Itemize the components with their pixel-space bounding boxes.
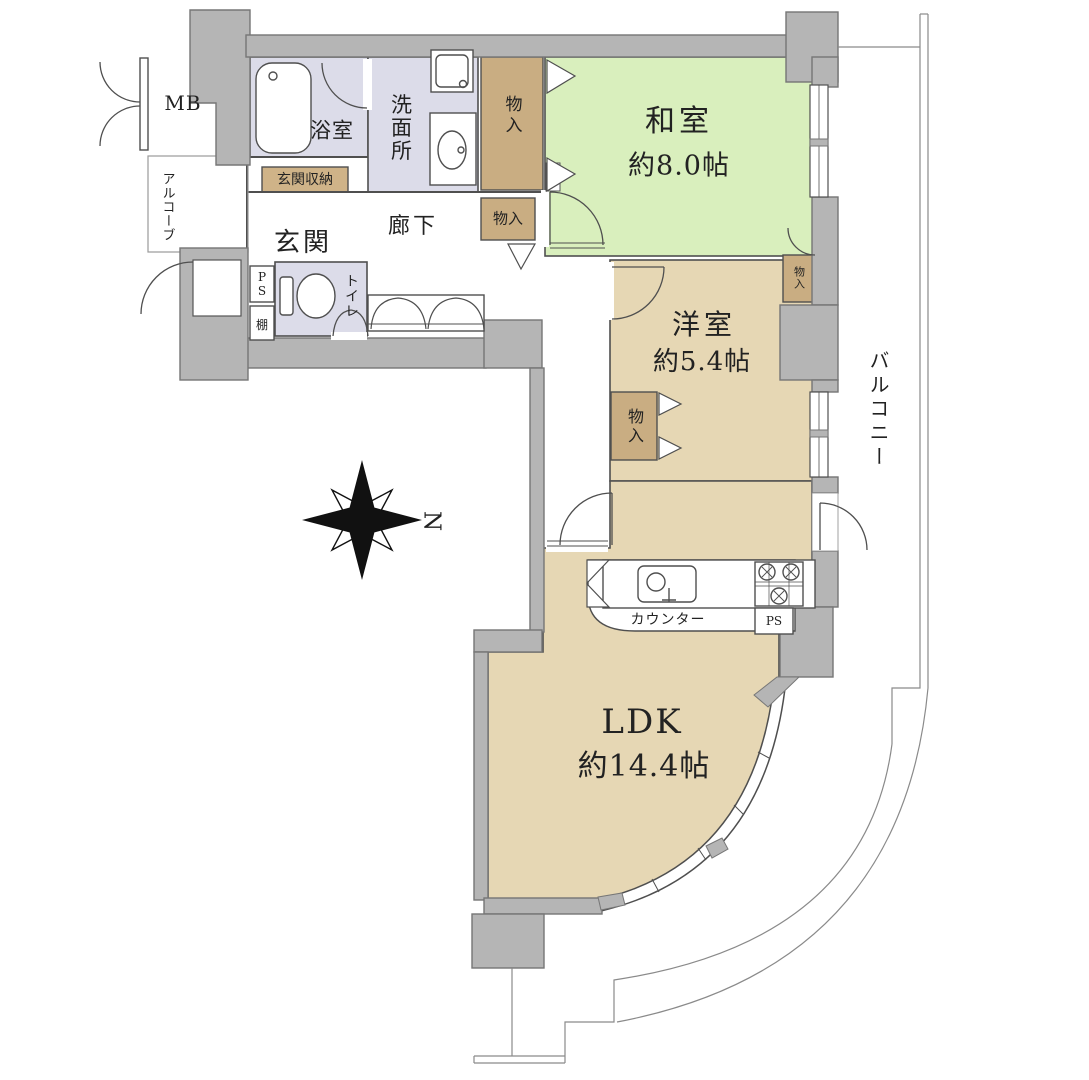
closet-label-monoire-b: 物入	[493, 212, 523, 227]
bathtub-icon	[256, 63, 311, 153]
closet-label-monoire-d: 物入	[626, 408, 642, 446]
room-size-ldk: 約14.4帖	[578, 752, 711, 782]
closet-label-monoire-c: 物入	[794, 266, 805, 290]
room-label-yoshitsu: 洋室	[672, 311, 736, 339]
room-label-washitsu: 和室	[645, 107, 713, 137]
floorplan: MB アルコーブ 浴室 洗面所 物入 物入 玄関収納 玄関 廊下 PS 棚 トイ…	[0, 0, 1089, 1080]
mb-door-arcs	[100, 62, 140, 146]
room-size-yoshitsu: 約5.4帖	[653, 349, 751, 375]
room-label-mb: MB	[164, 93, 201, 113]
vanity-icon	[430, 113, 476, 185]
room-label-genkan: 玄関	[274, 230, 332, 256]
room-label-rouka: 廊下	[388, 216, 438, 238]
ldk-door-arc	[560, 493, 612, 545]
shelf-label: 棚	[256, 319, 268, 331]
counter-label: カウンター	[631, 613, 706, 627]
room-label-balcony: バルコニー	[868, 350, 888, 470]
ps-label-toilet: PS	[256, 270, 268, 298]
mb-door-frame	[140, 58, 148, 150]
room-label-alcove: アルコーブ	[161, 172, 174, 242]
floorplan-svg	[0, 0, 1089, 1080]
room-label-bath: 浴室	[310, 121, 354, 142]
ps-label-kitchen: PS	[766, 615, 782, 627]
closet-label-monoire-a: 物入	[503, 95, 520, 137]
room-label-senmenjo: 洗面所	[390, 94, 411, 163]
toilet-icon	[280, 277, 293, 315]
compass-icon	[304, 462, 420, 578]
room-label-toilet: トイレ	[344, 274, 358, 319]
closet-label-genkan-storage: 玄関収納	[277, 173, 333, 187]
room-size-washitsu: 約8.0帖	[628, 153, 730, 180]
room-label-ldk: LDK	[601, 705, 682, 739]
stove-icon	[755, 562, 803, 606]
compass-north-label: N	[420, 511, 443, 531]
